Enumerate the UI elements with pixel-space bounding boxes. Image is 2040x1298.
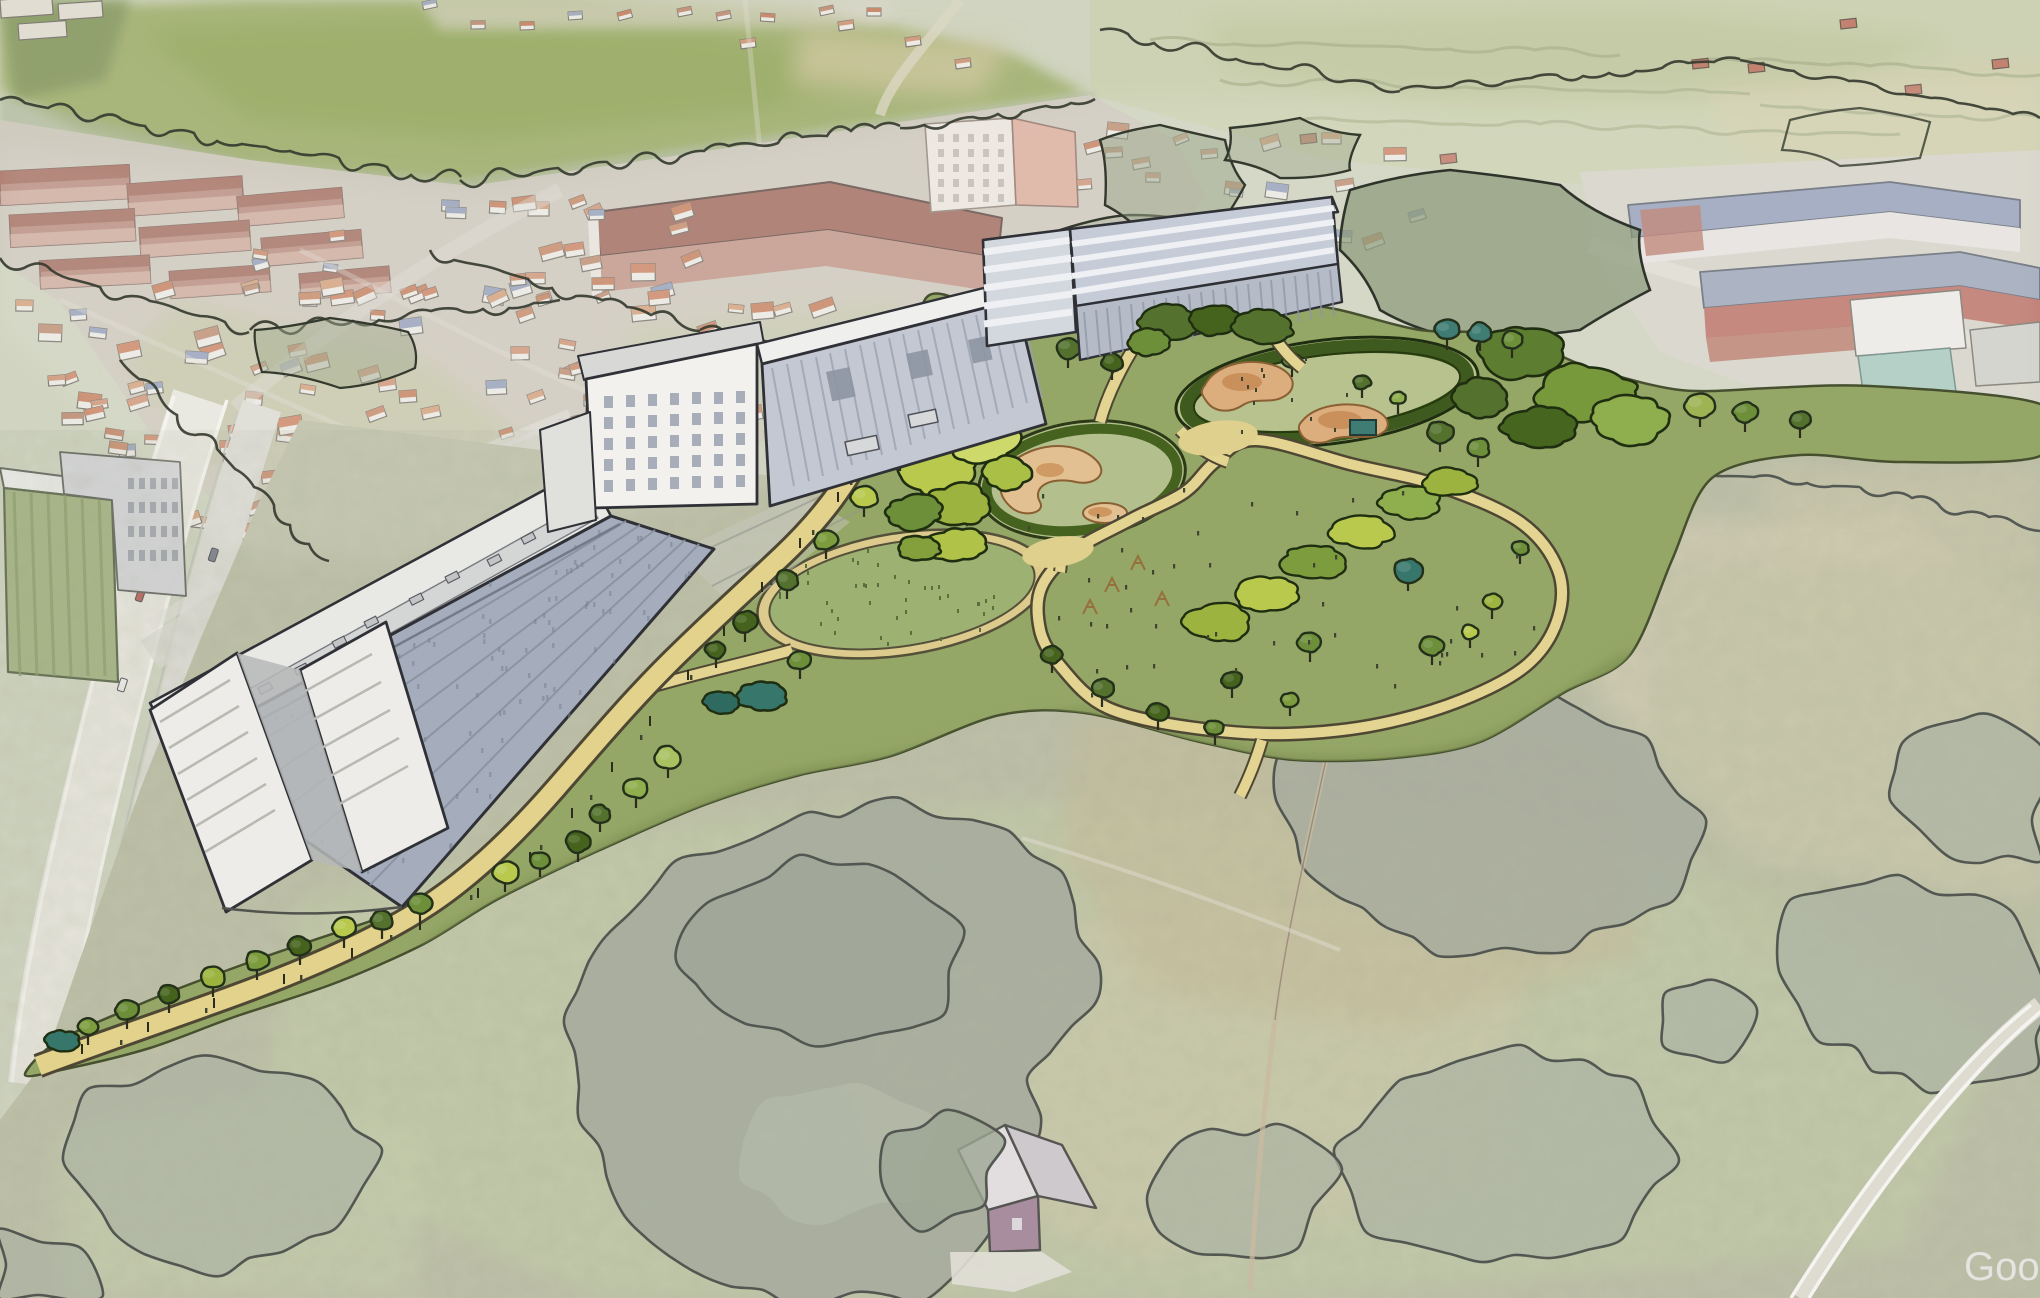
svg-text:Goog: Goog xyxy=(1964,1245,2040,1289)
